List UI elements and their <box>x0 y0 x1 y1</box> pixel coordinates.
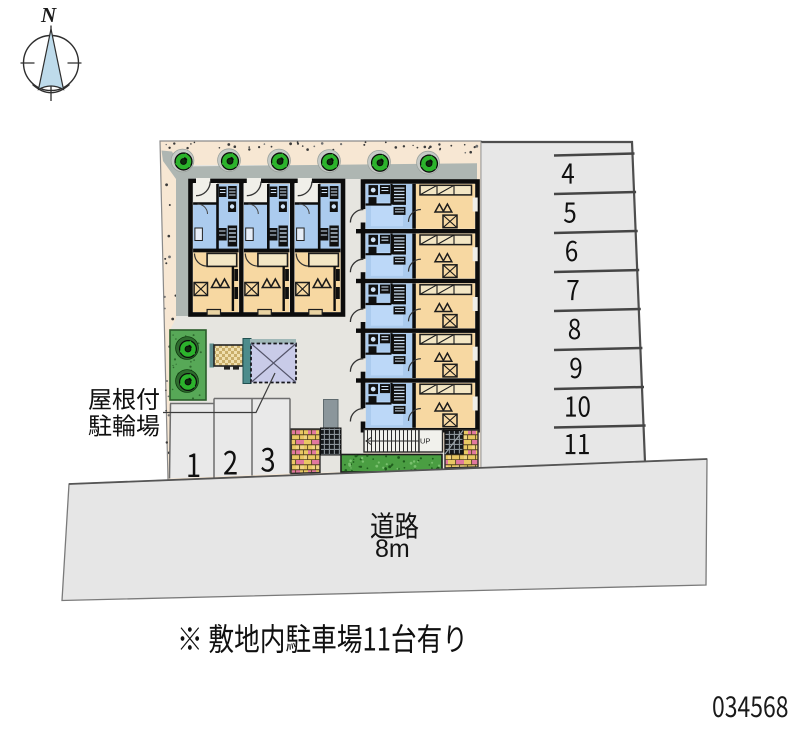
svg-text:8m: 8m <box>375 535 410 563</box>
svg-text:N: N <box>40 3 57 27</box>
svg-text:UP: UP <box>420 437 430 446</box>
